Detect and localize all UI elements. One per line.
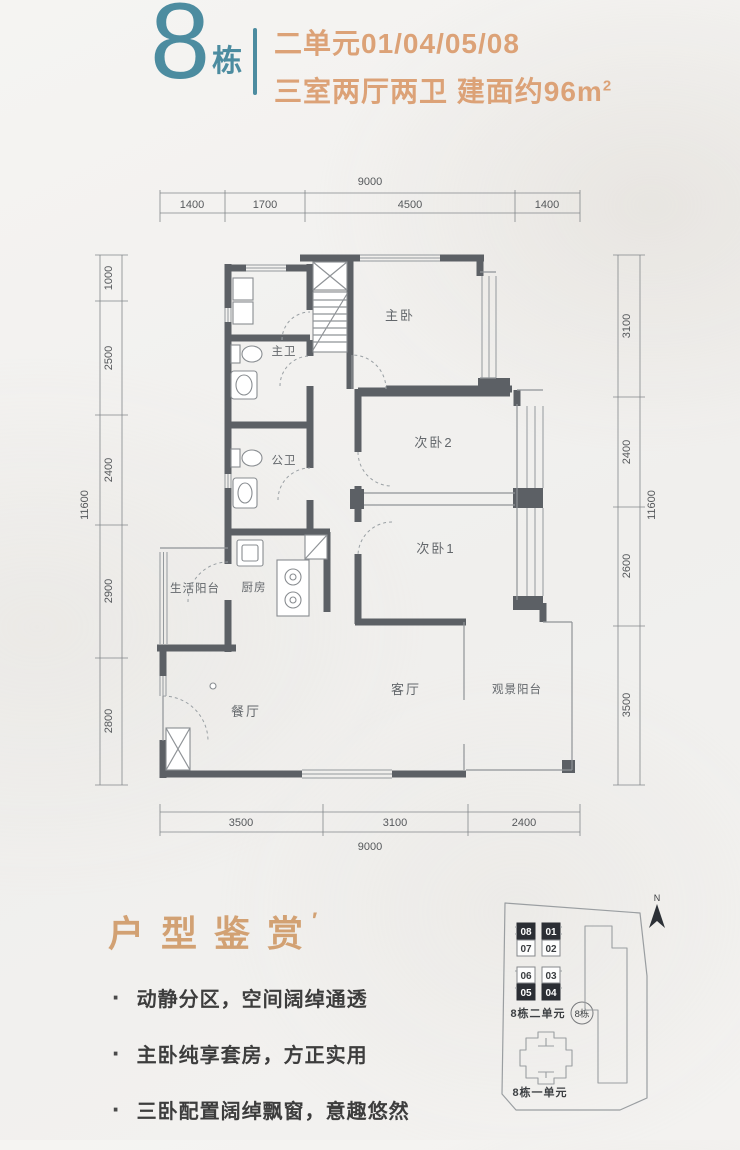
dimension-left: 1000 2500 2400 2900 2800 11600 <box>79 255 128 785</box>
unit-number: 08 <box>520 927 532 938</box>
selling-point: ·动静分区，空间阔绰通透 <box>112 982 410 1013</box>
toilet <box>231 449 240 467</box>
compass-icon: N <box>649 893 665 928</box>
dim-label: 2500 <box>103 346 115 370</box>
toilet <box>242 346 262 362</box>
site-map: N 08 01 07 02 06 03 05 04 8栋二单元 8栋 8栋一单元 <box>480 876 735 1136</box>
unit-number: 02 <box>545 944 557 955</box>
dim-label: 2400 <box>103 458 115 482</box>
dim-label: 3500 <box>229 817 253 829</box>
dim-label: 3500 <box>621 693 633 717</box>
dim-label: 2400 <box>512 817 536 829</box>
adjacent-building <box>585 926 627 1083</box>
dim-bottom-total: 9000 <box>358 841 382 853</box>
dim-label: 1400 <box>535 199 559 211</box>
wall-block <box>562 760 575 773</box>
bullet-icon: · <box>112 982 122 1013</box>
building-badge: 8栋 <box>571 1002 593 1024</box>
dim-label: 3100 <box>383 817 407 829</box>
walls <box>157 255 575 778</box>
toilet <box>242 450 262 466</box>
selling-points: ·动静分区，空间阔绰通透 ·主卧纯享套房，方正实用 ·三卧配置阔绰飘窗，意趣悠然 <box>112 982 410 1150</box>
selling-point: ·主卧纯享套房，方正实用 <box>112 1038 410 1069</box>
room-label-master-bath: 主卫 <box>272 345 297 358</box>
compass-label: N <box>654 893 661 903</box>
wall-block <box>350 489 364 509</box>
room-label-bedroom-1: 次卧1 <box>416 541 455 556</box>
dim-label: 3100 <box>621 314 633 338</box>
dimension-bottom: 3500 3100 2400 9000 <box>160 804 580 853</box>
dim-label: 1000 <box>103 266 115 290</box>
unit-number: 07 <box>520 944 532 955</box>
compass-needle <box>649 904 665 928</box>
room-label-bedroom-2: 次卧2 <box>414 435 453 450</box>
room-label-guest-bath: 公卫 <box>272 454 297 467</box>
room-label-master-bedroom: 主卧 <box>385 308 415 323</box>
title-prime-mark: ′ <box>312 908 317 933</box>
selling-point: ·三卧配置阔绰飘窗，意趣悠然 <box>112 1094 410 1125</box>
dim-label: 2600 <box>621 554 633 578</box>
unit-number: 03 <box>545 971 557 982</box>
unit2-label: 8栋二单元 <box>510 1006 565 1020</box>
dimension-top: 9000 1400 1700 4500 1400 <box>160 176 580 222</box>
unit-number: 01 <box>545 927 557 938</box>
stair-core <box>313 262 347 352</box>
dim-label: 1700 <box>253 199 277 211</box>
sink-bowl <box>236 375 252 395</box>
room-label-kitchen: 厨房 <box>242 581 267 594</box>
unit-number: 04 <box>545 988 557 999</box>
room-label-view-balcony: 观景阳台 <box>492 682 542 696</box>
unit-number: 05 <box>520 988 532 999</box>
room-label-dining: 餐厅 <box>231 704 261 719</box>
fixtures <box>166 278 327 770</box>
unit1-footprint <box>520 1032 572 1084</box>
wall-block <box>478 378 510 394</box>
dim-left-total: 11600 <box>79 490 91 520</box>
cabinet <box>233 302 253 324</box>
burner <box>290 574 296 580</box>
burner <box>290 597 296 603</box>
dim-label: 4500 <box>398 199 422 211</box>
toilet <box>231 345 240 363</box>
unit-grid: 08 01 07 02 06 03 05 04 <box>515 923 562 1000</box>
bullet-icon: · <box>112 1038 122 1069</box>
unit1-label: 8栋一单元 <box>512 1085 567 1099</box>
dim-label: 1400 <box>180 199 204 211</box>
bullet-icon: · <box>112 1094 122 1125</box>
doors <box>163 312 392 741</box>
door-stop <box>210 683 216 689</box>
unit-number: 06 <box>520 971 532 982</box>
dim-right-total: 11600 <box>646 490 658 520</box>
section-title: 户型鉴赏′ <box>108 905 317 957</box>
dim-top-total: 9000 <box>358 176 382 188</box>
dimension-right: 3100 2400 2600 3500 11600 <box>613 255 658 785</box>
cabinet <box>233 278 253 300</box>
dim-label: 2400 <box>621 440 633 464</box>
room-label-living: 客厅 <box>391 682 421 697</box>
sink-bowl <box>238 483 252 503</box>
dim-label: 2900 <box>103 579 115 603</box>
dim-label: 2800 <box>103 709 115 733</box>
room-label-service-balcony: 生活阳台 <box>170 581 220 595</box>
floor-plan: 9000 1400 1700 4500 1400 3500 3100 2400 … <box>0 0 740 880</box>
kitchen-sink-bowl <box>242 545 258 561</box>
